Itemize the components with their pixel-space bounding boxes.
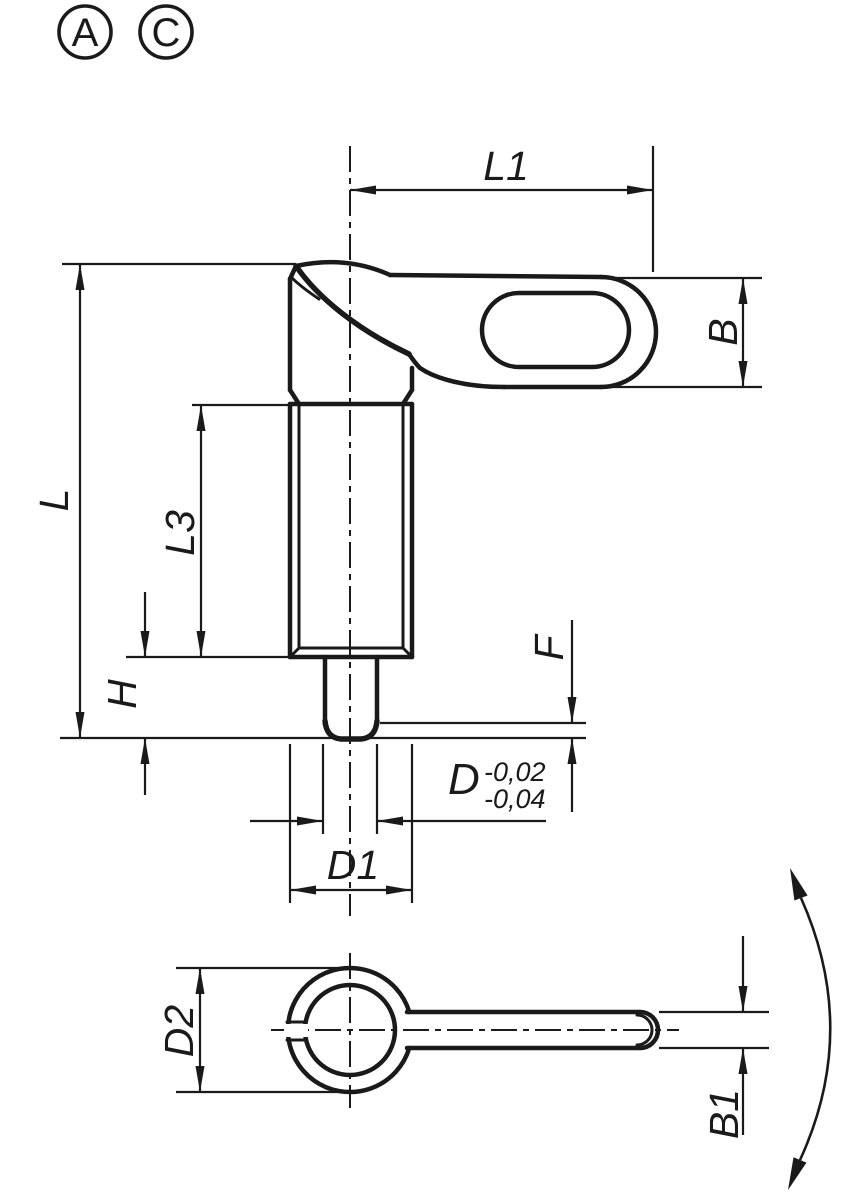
dim-label-f: F xyxy=(526,634,572,661)
dim-label-h: H xyxy=(99,679,145,709)
dim-b1-arrow-top xyxy=(739,986,748,1012)
dim-b-arrow-bottom xyxy=(739,361,748,387)
dim-label-d: D xyxy=(448,755,480,804)
dim-b-arrow-top xyxy=(739,278,748,304)
dim-l-arrow-top xyxy=(76,264,85,290)
dim-label-d1: D1 xyxy=(327,842,379,888)
dim-d2-arrow-top xyxy=(196,968,205,994)
dim-label-b: B xyxy=(700,318,746,345)
dimensions-bottom-view: D2 B1 xyxy=(156,936,769,1139)
cam-spiral-edge xyxy=(296,266,409,354)
view-markers: A C xyxy=(59,6,192,58)
dim-d1-arrow-right xyxy=(386,886,412,895)
dim-label-d2: D2 xyxy=(156,1005,202,1058)
ring-slit-mask xyxy=(284,1024,308,1037)
technical-drawing-canvas: A C xyxy=(0,0,860,1200)
view-marker-c-letter: C xyxy=(152,11,181,55)
head-top-arc xyxy=(296,262,390,275)
dim-label-l3: L3 xyxy=(157,510,203,556)
rotation-arrow-head-top xyxy=(790,868,808,901)
dim-l1-arrow-left xyxy=(350,186,376,195)
dim-b1-arrow-bottom xyxy=(739,1048,748,1074)
dim-l3-arrow-top xyxy=(197,405,206,431)
dim-l1-arrow-right xyxy=(627,186,653,195)
dim-f-arrow-top xyxy=(568,697,577,723)
bottom-view xyxy=(271,953,679,1108)
dim-d-arrow-left xyxy=(297,817,323,826)
dim-label-d-tol-lower: -0,04 xyxy=(484,784,546,814)
dim-l3: L3 xyxy=(157,405,290,657)
dim-d2-arrow-bottom xyxy=(196,1066,205,1092)
lever-underside-curve xyxy=(409,354,504,387)
dim-b: B xyxy=(601,278,762,387)
dim-h-arrow-bottom xyxy=(141,738,150,764)
rotation-arrow xyxy=(788,868,830,1190)
view-marker-a-letter: A xyxy=(72,11,99,55)
dim-label-d-tol-upper: -0,02 xyxy=(484,757,546,787)
dim-d-arrow-right xyxy=(377,817,403,826)
dim-label-b1: B1 xyxy=(701,1089,747,1139)
lever-top-edge xyxy=(390,275,601,277)
dim-b1: B1 xyxy=(659,936,769,1139)
dim-d: D -0,02 -0,04 xyxy=(250,744,546,834)
rotation-arrow-arc xyxy=(800,898,830,1160)
dim-l-arrow-bottom xyxy=(76,712,85,738)
dim-d1-arrow-left xyxy=(290,886,316,895)
dim-l1: L1 xyxy=(350,143,653,272)
dim-l: L xyxy=(31,264,296,738)
rotation-arrow-head-bottom xyxy=(788,1157,807,1190)
dim-label-l: L xyxy=(31,489,77,512)
dim-h: H xyxy=(99,592,290,795)
dim-label-l1: L1 xyxy=(483,143,529,189)
dim-f-arrow-bottom xyxy=(568,738,577,764)
dim-l3-arrow-bottom xyxy=(197,631,206,657)
lever-slot xyxy=(482,293,629,367)
dimensions-side-view: L1 B L L3 xyxy=(31,143,762,903)
dim-h-arrow-top xyxy=(141,631,150,657)
